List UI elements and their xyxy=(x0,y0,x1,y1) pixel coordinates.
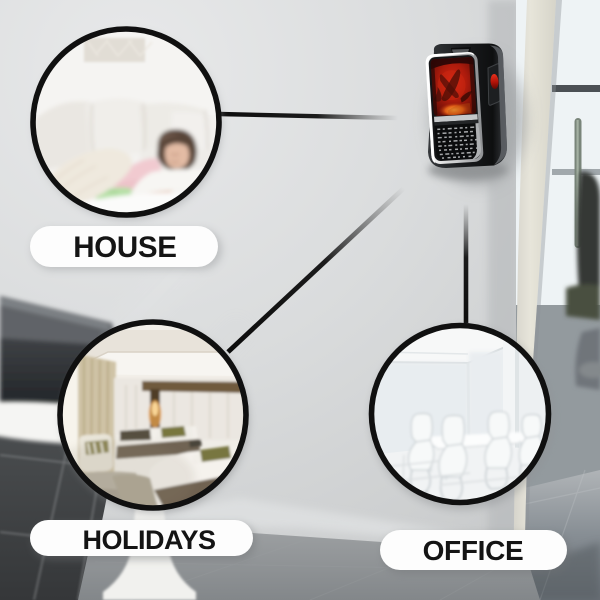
svg-text:HOUSE: HOUSE xyxy=(73,231,176,264)
svg-text:OFFICE: OFFICE xyxy=(423,535,524,566)
svg-text:HOLIDAYS: HOLIDAYS xyxy=(82,525,215,555)
